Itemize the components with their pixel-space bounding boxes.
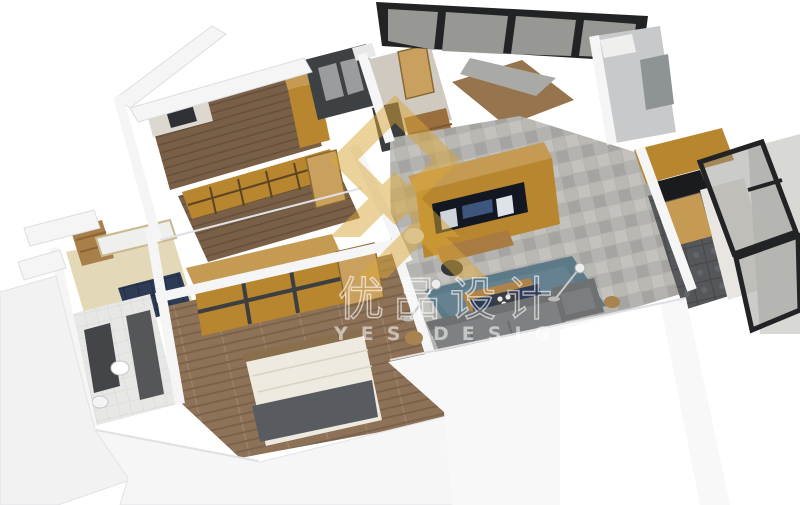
watermark-text-en: YES DESIGN [333,323,592,345]
roof-pane-3 [511,16,576,56]
bathroom2-mosaic [640,54,674,110]
isometric-apartment-scene: 优品设计 YES DESIGN [0,0,800,505]
washbasin [92,396,108,408]
roof-pane-2 [442,12,508,54]
toilet [111,361,129,375]
floorplan-render: 优品设计 YES DESIGN [0,0,800,505]
watermark-text-cn: 优品设计 [338,272,562,326]
wood-stool-right [604,296,620,308]
